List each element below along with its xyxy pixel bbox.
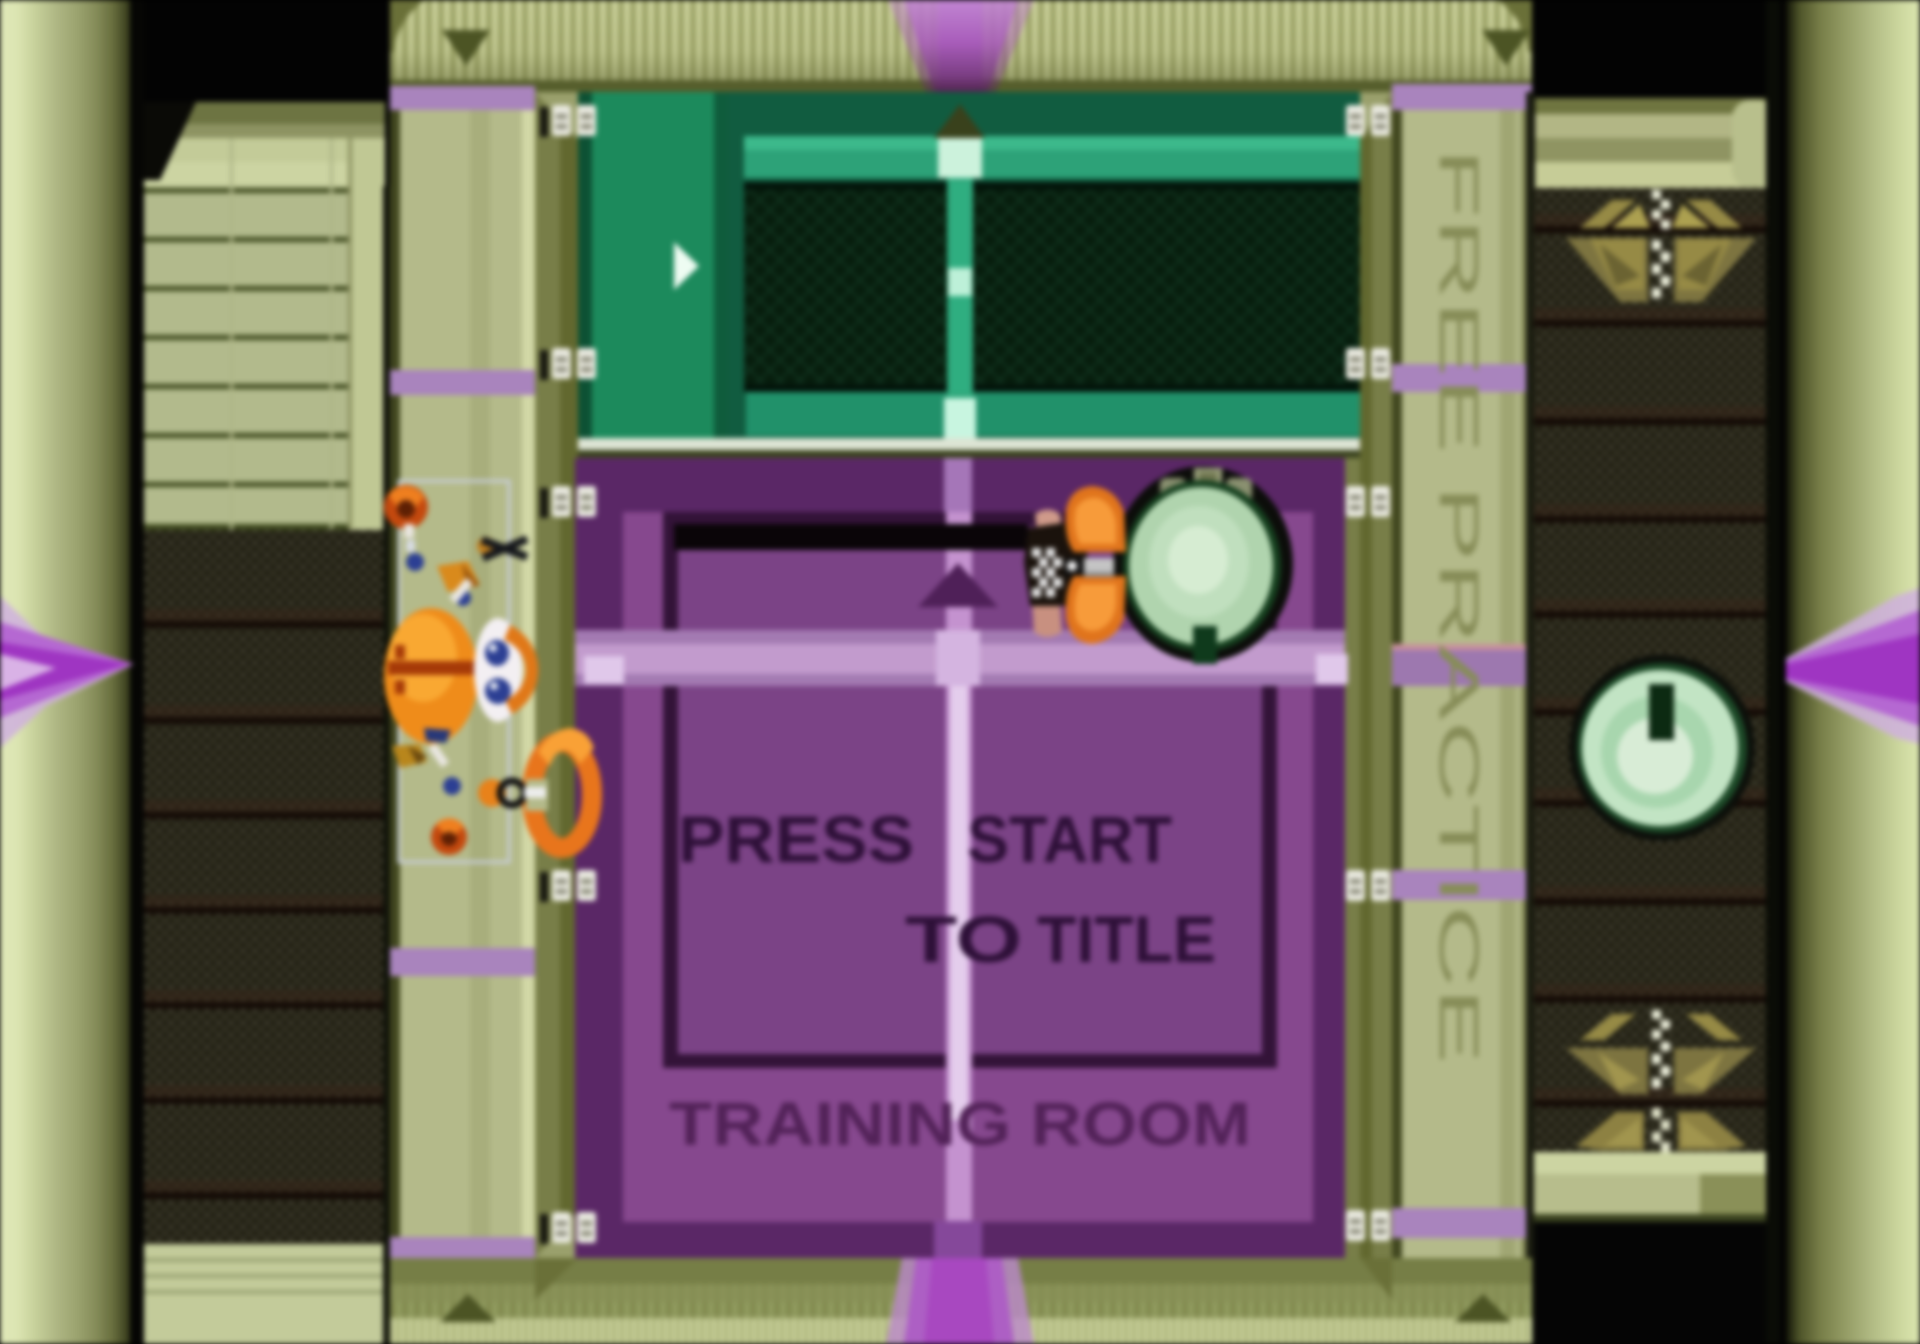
svg-text:PRESS: PRESS	[678, 802, 914, 876]
svg-text:START: START	[967, 802, 1172, 876]
svg-text:TITLE: TITLE	[1037, 902, 1216, 976]
svg-text:TO: TO	[905, 902, 1022, 976]
svg-text:TRAINING ROOM: TRAINING ROOM	[669, 1090, 1251, 1158]
svg-text:FREE PRACTICE: FREE PRACTICE	[1428, 148, 1491, 1064]
